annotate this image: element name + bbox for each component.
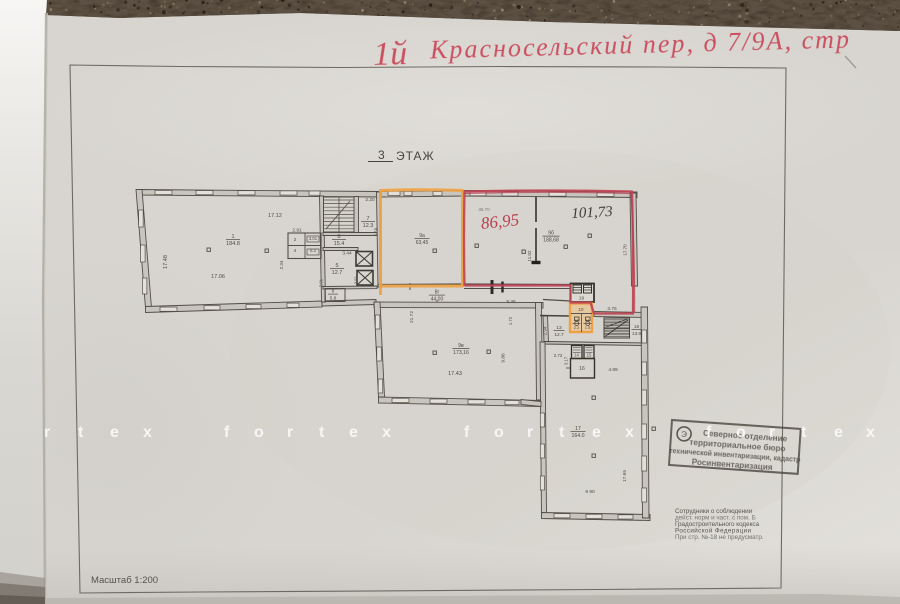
svg-text:44,00: 44,00 <box>431 297 444 303</box>
svg-text:17.12: 17.12 <box>268 213 282 219</box>
svg-text:12.7: 12.7 <box>554 332 564 338</box>
svg-text:Масштаб 1:200: Масштаб 1:200 <box>91 575 158 586</box>
svg-text:17.43: 17.43 <box>448 371 462 377</box>
svg-text:2.94: 2.94 <box>543 326 548 335</box>
svg-text:o: o <box>494 424 504 441</box>
svg-text:19: 19 <box>579 296 585 302</box>
svg-text:f: f <box>464 424 470 441</box>
svg-text:17.06: 17.06 <box>211 274 225 280</box>
svg-text:6.2: 6.2 <box>310 248 316 253</box>
svg-text:x: x <box>866 424 875 441</box>
svg-text:14: 14 <box>574 353 579 358</box>
svg-text:9в: 9в <box>458 343 464 349</box>
svg-text:2.72: 2.72 <box>554 353 563 358</box>
svg-text:5.59: 5.59 <box>374 227 379 236</box>
svg-text:101,73: 101,73 <box>571 204 613 222</box>
svg-text:r: r <box>769 424 775 441</box>
svg-text:t: t <box>78 424 84 441</box>
svg-text:21.72: 21.72 <box>409 311 415 323</box>
svg-text:15.4: 15.4 <box>334 241 345 247</box>
svg-text:При стр. №-18 не предусматр.: При стр. №-18 не предусматр. <box>675 534 764 541</box>
svg-text:t: t <box>319 424 325 441</box>
svg-text:2.91: 2.91 <box>292 228 302 234</box>
svg-text:x: x <box>143 424 152 441</box>
svg-text:5: 5 <box>335 263 338 269</box>
svg-text:e: e <box>349 424 358 441</box>
svg-text:9б: 9б <box>548 231 554 237</box>
svg-text:2.2: 2.2 <box>574 325 580 330</box>
svg-text:11.02: 11.02 <box>527 250 532 261</box>
svg-text:t: t <box>801 424 807 441</box>
svg-text:3: 3 <box>378 148 385 162</box>
svg-text:5.8: 5.8 <box>330 296 337 302</box>
svg-text:e: e <box>834 424 843 441</box>
svg-text:13.9: 13.9 <box>632 331 641 336</box>
svg-text:3.44: 3.44 <box>342 251 352 257</box>
svg-text:ЭТАЖ: ЭТАЖ <box>396 149 435 163</box>
svg-text:16: 16 <box>579 366 585 372</box>
svg-text:17.48: 17.48 <box>163 255 169 269</box>
svg-text:17: 17 <box>575 426 581 432</box>
svg-text:18: 18 <box>634 324 640 329</box>
svg-text:f: f <box>224 424 230 441</box>
svg-text:9а: 9а <box>419 233 425 239</box>
svg-text:15: 15 <box>587 353 592 358</box>
svg-text:3.17: 3.17 <box>564 356 569 365</box>
svg-text:6: 6 <box>332 289 335 295</box>
svg-text:r: r <box>287 424 293 441</box>
svg-text:o: o <box>736 424 746 441</box>
svg-text:63,45: 63,45 <box>416 240 429 246</box>
svg-text:1: 1 <box>231 234 234 240</box>
svg-text:1.5: 1.5 <box>585 325 591 330</box>
svg-text:13: 13 <box>556 325 562 331</box>
svg-text:173,16: 173,16 <box>453 350 469 356</box>
svg-text:e: e <box>592 424 601 441</box>
svg-text:12: 12 <box>574 318 579 323</box>
svg-text:4.89: 4.89 <box>608 367 618 373</box>
svg-text:r: r <box>44 424 50 441</box>
svg-text:x: x <box>625 424 634 441</box>
svg-text:12.3: 12.3 <box>363 223 374 229</box>
svg-text:86,95: 86,95 <box>480 210 520 233</box>
svg-text:2: 2 <box>294 237 297 243</box>
svg-text:188,68: 188,68 <box>543 238 559 244</box>
svg-text:10: 10 <box>578 307 584 312</box>
svg-text:t: t <box>559 424 565 441</box>
svg-text:8: 8 <box>337 234 340 240</box>
svg-text:184.8: 184.8 <box>226 241 240 247</box>
svg-text:9.86: 9.86 <box>501 353 507 363</box>
svg-text:f: f <box>706 424 712 441</box>
svg-text:2.20: 2.20 <box>365 197 375 203</box>
svg-text:2.91: 2.91 <box>319 278 324 287</box>
svg-text:3.75: 3.75 <box>607 306 617 312</box>
svg-text:7: 7 <box>366 216 369 222</box>
svg-text:1.72: 1.72 <box>508 316 513 325</box>
svg-text:2.34: 2.34 <box>279 260 284 269</box>
svg-text:36.70: 36.70 <box>478 207 490 212</box>
svg-text:12.7: 12.7 <box>332 270 343 276</box>
svg-text:4: 4 <box>294 248 297 254</box>
svg-text:164.0: 164.0 <box>572 433 585 439</box>
svg-text:17.70: 17.70 <box>623 244 628 256</box>
svg-text:3.01: 3.01 <box>309 236 318 241</box>
svg-text:9 90: 9 90 <box>585 489 595 495</box>
svg-text:e: e <box>110 424 119 441</box>
svg-text:1й: 1й <box>373 35 408 73</box>
svg-text:17.65: 17.65 <box>622 470 628 482</box>
svg-text:3.51: 3.51 <box>354 275 359 284</box>
svg-text:x: x <box>382 424 391 441</box>
svg-text:o: o <box>254 424 264 441</box>
svg-text:Э: Э <box>681 430 688 439</box>
svg-text:8г: 8г <box>435 290 440 296</box>
svg-text:8.36: 8.36 <box>506 299 516 305</box>
svg-text:r: r <box>527 424 533 441</box>
